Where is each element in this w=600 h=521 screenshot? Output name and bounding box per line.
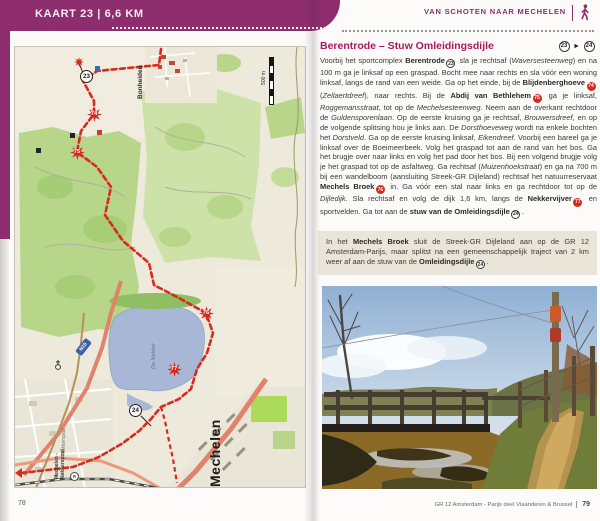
map-title: KAART 23 | 6,6 KM <box>35 8 144 20</box>
building-icon <box>36 148 41 153</box>
scale-label: 500 m <box>261 71 267 85</box>
text-segment: . <box>522 207 524 216</box>
poi-number: 76 <box>199 310 214 316</box>
page-number-left: 78 <box>18 500 26 507</box>
route-node-inline: 24 <box>511 210 520 219</box>
text-segment: Abdij van Bethlehem <box>450 91 531 100</box>
poi-badge: 75 <box>533 94 542 103</box>
text-segment: Brouwersdreef <box>524 113 572 122</box>
text-segment: Omleidingsdijle <box>419 257 474 266</box>
text-segment: Eikendreef <box>478 133 514 142</box>
route-node-marker <box>74 54 84 64</box>
building-icon <box>70 133 75 138</box>
text-segment: Dorstveld <box>333 133 364 142</box>
text-segment: stuw van de Omleidingsdijle <box>410 207 510 216</box>
map-poi-marker-77: 77 <box>167 362 182 377</box>
page-gutter <box>304 0 320 521</box>
poi-badge: 77 <box>573 198 582 207</box>
route-start-circle: 23 <box>559 41 570 52</box>
map-base-art <box>15 47 306 488</box>
route-end-circle: 24 <box>584 41 595 52</box>
poi-badge: 76 <box>376 185 385 194</box>
route-node-inline: 24 <box>476 260 485 269</box>
map-node-circle-24: 24 <box>129 404 142 417</box>
text-segment: Roggemansstraat <box>320 103 379 112</box>
text-segment: Muizenhoekstraat <box>481 162 540 171</box>
book-spread: KAART 23 | 6,6 KM <box>0 0 600 521</box>
text-segment: Mechels Broek <box>320 182 374 191</box>
text-segment: Dorsthoeveweg <box>461 123 513 132</box>
station-letter: R <box>73 474 76 479</box>
text-segment: Nekkervijver <box>528 194 572 203</box>
section-title-row: Berentrode – Stuw Omleidingsdijle 23 ► 2… <box>320 40 596 52</box>
map-poi-marker-75: 75 <box>70 145 85 160</box>
node-number: 24 <box>132 407 139 414</box>
footer-text: GR 12 Amsterdam - Parijs deel Vlaanderen… <box>435 502 573 508</box>
poi-badge: 74 <box>587 82 596 91</box>
dotted-rule-left <box>112 27 334 29</box>
text-segment: . Ga op de eerste kruising linksaf, <box>364 133 478 142</box>
text-segment: Dijledijk <box>320 194 346 203</box>
page-edge <box>0 239 9 521</box>
text-segment: in. Ga vóór een stal naar links en ga re… <box>386 182 597 191</box>
route-description: Voorbij het sportcomplex Berentrode23 sl… <box>320 56 597 219</box>
text-segment: . <box>486 257 488 266</box>
book-footer: GR 12 Amsterdam - Parijs deel Vlaanderen… <box>435 501 590 508</box>
page-number-right: 79 <box>576 501 590 508</box>
station-icon: R <box>70 472 79 481</box>
poi-number: 75 <box>70 149 85 155</box>
red-poi-icon <box>97 130 102 135</box>
info-box: In het Mechels Broek sluit de Streek-GR … <box>318 231 597 275</box>
map-poi-marker-76: 76 <box>199 306 214 321</box>
text-segment: Mechels Broek <box>353 237 409 246</box>
chapter-header: VAN SCHOTEN NAAR MECHELEN <box>330 7 566 16</box>
dotted-rule-right <box>342 30 594 32</box>
map-poi-marker-74: 74 <box>87 107 102 122</box>
text-segment: , tot op de <box>379 103 417 112</box>
poi-number: 74 <box>87 111 102 117</box>
spine-strip <box>0 0 10 239</box>
text-segment: Berentrode <box>405 56 445 65</box>
text-segment: Mechelsesteenweg <box>417 103 481 112</box>
text-segment: . Op de eerste kruising ga je rechtsaf, <box>392 113 524 122</box>
text-segment: Zellaertdreef <box>322 91 364 100</box>
photo-footbridge <box>322 286 597 489</box>
blue-poi-icon <box>95 66 100 71</box>
text-segment: ga je linksaf, <box>543 91 597 100</box>
text-segment: Guldensporenlaan <box>331 113 392 122</box>
map-scale-bar: 500 m <box>269 57 274 105</box>
text-segment: . Sla rechtsaf en volg de dijk 1,6 km, l… <box>346 194 528 203</box>
node-number: 23 <box>83 73 90 80</box>
poi-number: 77 <box>167 366 182 372</box>
header-divider <box>572 5 573 21</box>
text-segment: ), naar rechts. Bij de <box>364 91 450 100</box>
map-node-circle-23: 23 <box>80 70 93 83</box>
text-segment: Waversesteenweg <box>512 56 573 65</box>
text-segment: Blijdenberghoeve <box>523 78 585 87</box>
route-arrow-icon: ► <box>573 43 580 50</box>
hiker-icon <box>579 4 591 27</box>
text-segment: sla je rechtsaf ( <box>457 56 512 65</box>
section-title: Berentrode – Stuw Omleidingsdijle <box>320 40 494 52</box>
text-segment: Voorbij het sportcomplex <box>320 56 405 65</box>
text-segment: In het <box>326 237 353 246</box>
route-node-inline: 23 <box>446 59 455 68</box>
route-endpoints: 23 ► 24 <box>557 41 596 52</box>
topographic-map: 74 75 76 77 23 24 Bonheiden Mec <box>14 46 306 488</box>
